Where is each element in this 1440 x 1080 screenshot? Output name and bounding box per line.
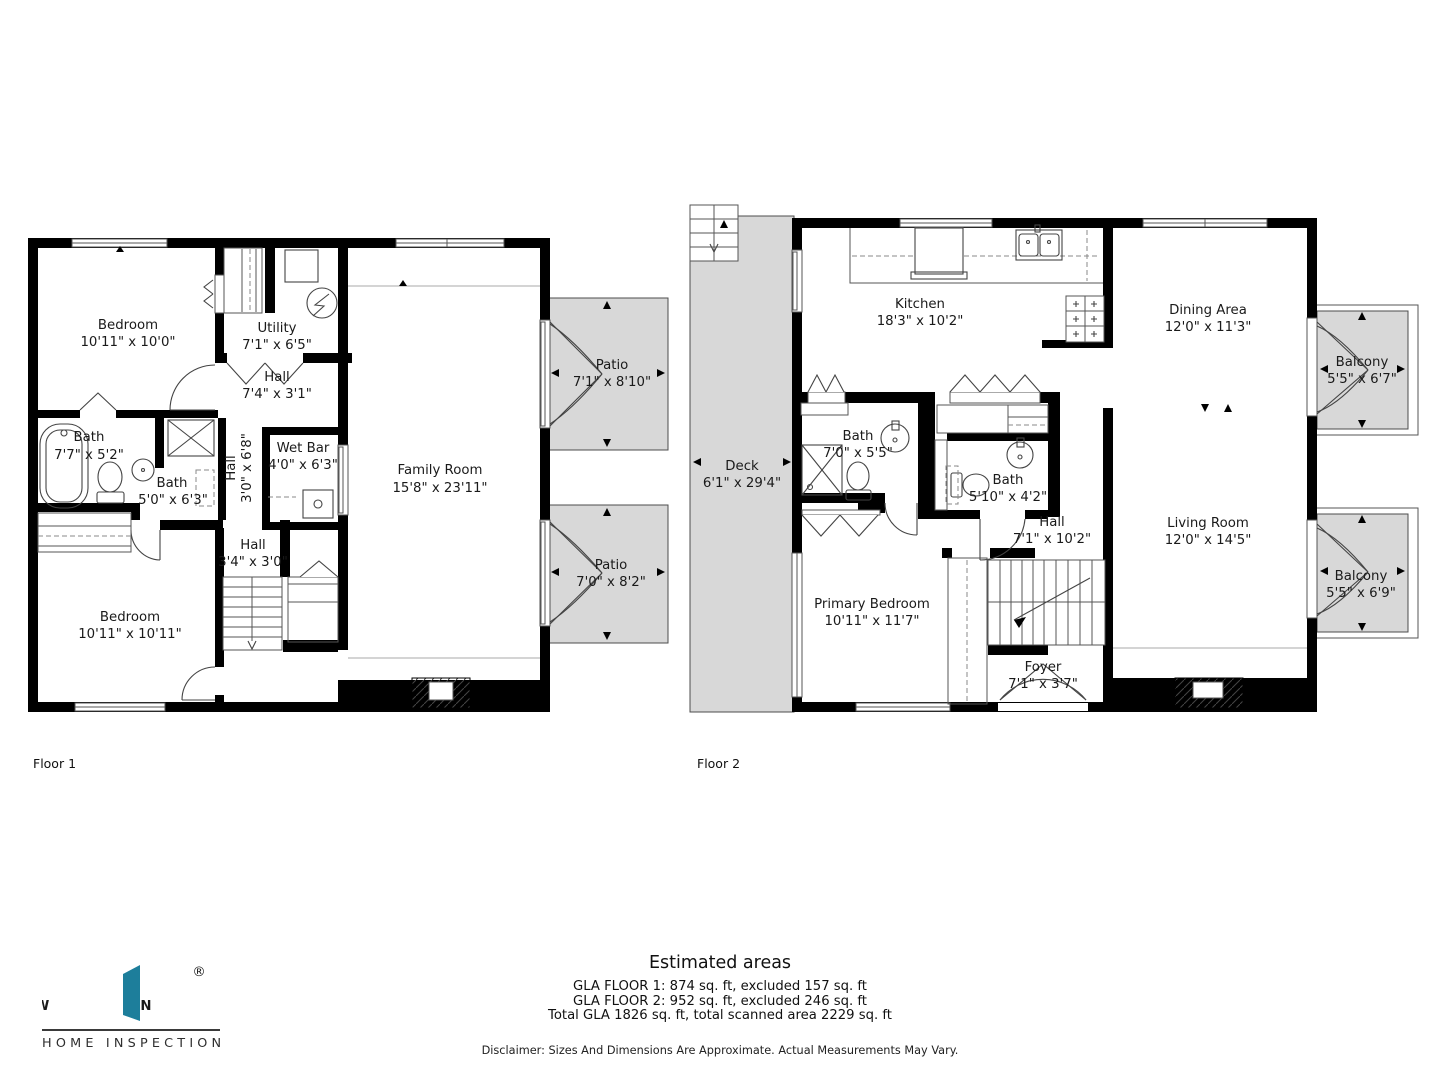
room-dims-f1-hallv: 3'0" x 6'8" [240,433,255,503]
floorplan-page: Bedroom 10'11" x 10'0" Utility 7'1" x 6'… [0,0,1440,1080]
room-label-f1-hall2: Hall [240,538,266,553]
room-dims-f2-bath1: 7'0" x 5'5" [823,446,893,461]
room-dims-f1-wetbar: 4'0" x 6'3" [268,458,338,473]
disclaimer-text: Disclaimer: Sizes And Dimensions Are App… [0,1044,1440,1057]
floor1-plan: Bedroom 10'11" x 10'0" Utility 7'1" x 6'… [28,238,668,712]
room-label-f2-bath2: Bath [993,473,1024,488]
room-label-f2-balcony1: Balcony [1336,355,1389,370]
room-label-f2-bath1: Bath [843,429,874,444]
room-dims-f2-deck: 6'1" x 29'4" [703,476,781,491]
room-label-f1-bath2: Bath [157,476,188,491]
room-label-f2-balcony2: Balcony [1335,569,1388,584]
room-label-f2-living: Living Room [1167,516,1249,531]
room-dims-f1-patio1: 7'1" x 8'10" [573,375,651,390]
room-label-f1-patio1: Patio [596,358,629,373]
floor2-caption: Floor 2 [697,756,740,771]
floorplan-canvas: Bedroom 10'11" x 10'0" Utility 7'1" x 6'… [0,0,1440,1080]
room-label-f1-hallv: Hall [224,455,239,481]
estimated-areas-title: Estimated areas [0,953,1440,973]
room-label-f1-bedroom2: Bedroom [100,610,160,625]
room-dims-f1-hall2: 3'4" x 3'0" [218,555,288,570]
room-label-f1-bedroom1: Bedroom [98,318,158,333]
room-dims-f1-bedroom1: 10'11" x 10'0" [80,335,175,350]
room-dims-f1-bath2: 5'0" x 6'3" [138,493,208,508]
room-dims-f1-hall1: 7'4" x 3'1" [242,387,312,402]
room-dims-f2-living: 12'0" x 14'5" [1165,533,1252,548]
room-dims-f1-bath1: 7'7" x 5'2" [54,448,124,463]
floor1-patios [548,298,668,643]
room-label-f2-primary: Primary Bedroom [814,597,930,612]
room-label-f2-hall: Hall [1039,515,1065,530]
room-dims-f2-kitchen: 18'3" x 10'2" [877,314,964,329]
room-dims-f1-utility: 7'1" x 6'5" [242,338,312,353]
room-dims-f2-dining: 12'0" x 11'3" [1165,320,1252,335]
room-dims-f1-patio2: 7'0" x 8'2" [576,575,646,590]
room-dims-f1-bedroom2: 10'11" x 10'11" [78,627,182,642]
floor2-plan: Kitchen 18'3" x 10'2" Dining Area 12'0" … [690,205,1418,712]
estimated-areas-block: Estimated areas GLA FLOOR 1: 874 sq. ft,… [0,953,1440,1057]
room-label-f1-family: Family Room [398,463,483,478]
room-dims-f2-foyer: 7'1" x 3'7" [1008,677,1078,692]
room-dims-f1-family: 15'8" x 23'11" [392,481,487,496]
room-label-f1-utility: Utility [257,321,296,336]
room-dims-f2-bath2: 5'10" x 4'2" [969,490,1047,505]
room-dims-f2-primary: 10'11" x 11'7" [824,614,919,629]
room-label-f1-bath1: Bath [74,430,105,445]
gla-floor2-line: GLA FLOOR 2: 952 sq. ft, excluded 246 sq… [0,995,1440,1010]
room-label-f2-deck: Deck [725,459,759,474]
room-label-f1-hall1: Hall [264,370,290,385]
room-dims-f2-balcony1: 5'5" x 6'7" [1327,372,1397,387]
room-label-f2-foyer: Foyer [1025,660,1062,675]
floor1-caption: Floor 1 [33,756,76,771]
room-label-f2-dining: Dining Area [1169,303,1247,318]
room-dims-f2-balcony2: 5'5" x 6'9" [1326,586,1396,601]
room-label-f1-patio2: Patio [595,558,628,573]
room-dims-f2-hall: 7'1" x 10'2" [1013,532,1091,547]
gla-total-line: Total GLA 1826 sq. ft, total scanned are… [0,1009,1440,1024]
room-label-f2-kitchen: Kitchen [895,297,945,312]
room-label-f1-wetbar: Wet Bar [277,441,330,456]
gla-floor1-line: GLA FLOOR 1: 874 sq. ft, excluded 157 sq… [0,980,1440,995]
